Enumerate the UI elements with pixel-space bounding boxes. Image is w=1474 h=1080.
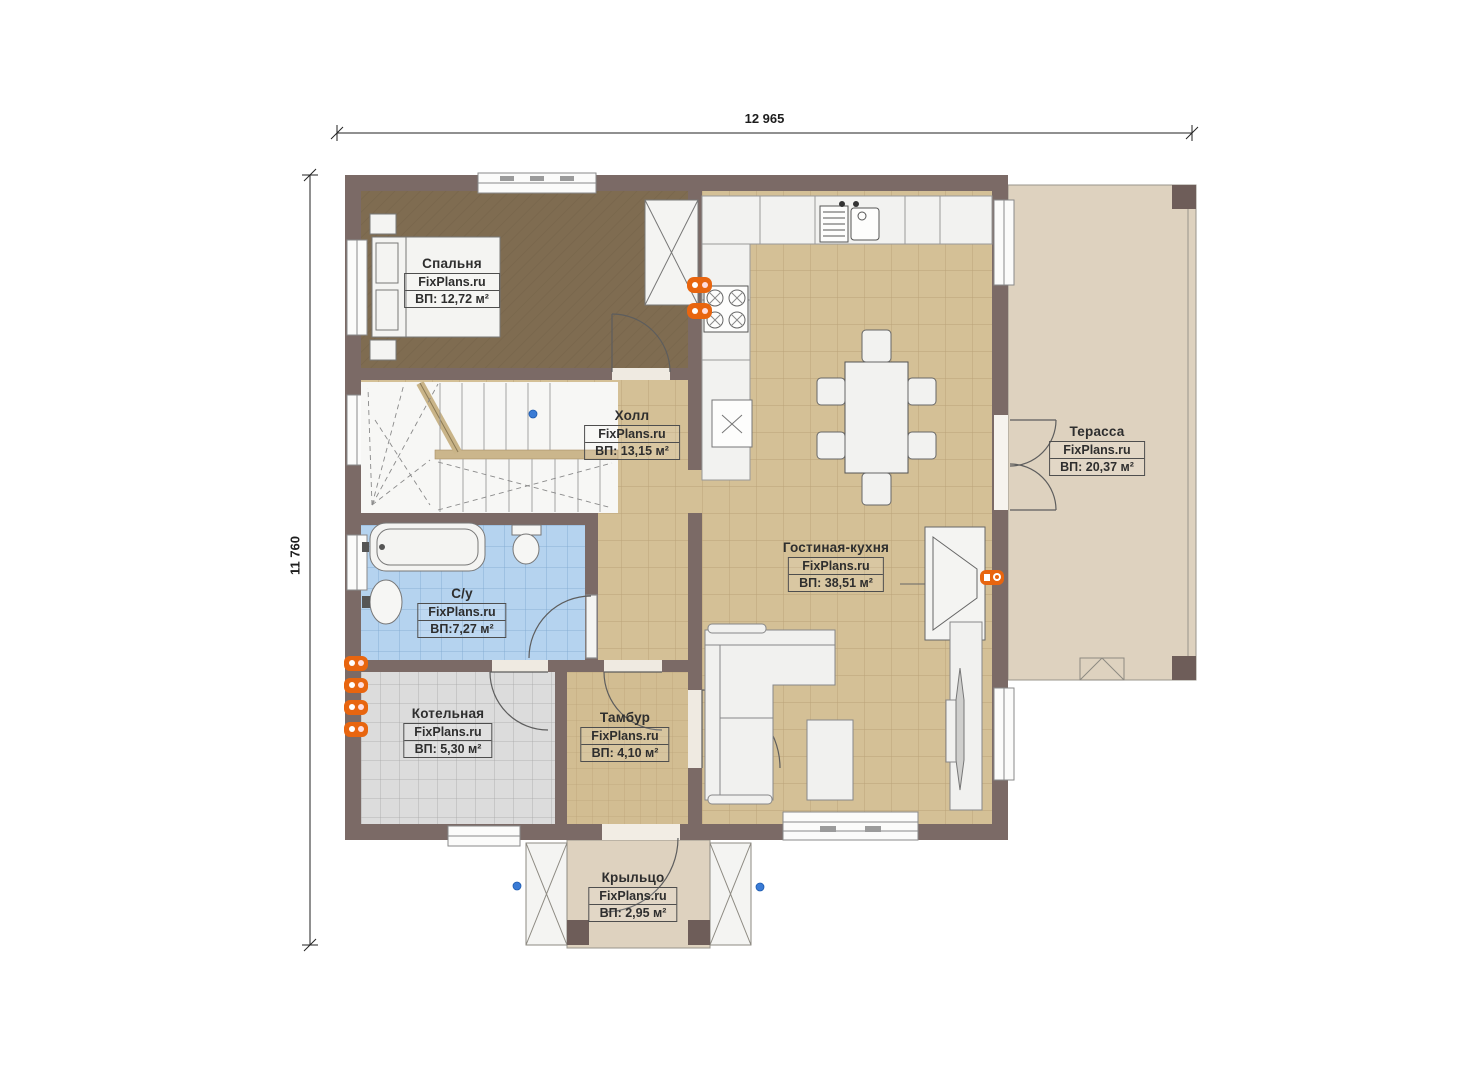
room-name: Гостиная-кухня bbox=[783, 540, 889, 555]
room-area-text: ВП: 2,95 м² bbox=[589, 905, 676, 921]
floor-plan-canvas: 12 965 11 760 Спальня FixPlans.ru ВП: 12… bbox=[0, 0, 1474, 1080]
power-socket-icon bbox=[344, 722, 368, 737]
room-info-box: FixPlans.ru ВП:7,27 м² bbox=[417, 603, 506, 638]
toilet bbox=[512, 525, 541, 564]
room-area-text: ВП: 38,51 м² bbox=[789, 575, 883, 591]
tv-stand bbox=[946, 622, 982, 810]
dimension-width-label: 12 965 bbox=[337, 111, 1192, 126]
room-info-box: FixPlans.ru ВП: 2,95 м² bbox=[588, 887, 677, 922]
brand-text: FixPlans.ru bbox=[404, 724, 491, 741]
selection-handle[interactable] bbox=[513, 882, 521, 890]
room-area-text: ВП: 4,10 м² bbox=[581, 745, 668, 761]
brand-text: FixPlans.ru bbox=[585, 426, 679, 443]
room-label-bedroom: Спальня FixPlans.ru ВП: 12,72 м² bbox=[404, 256, 500, 308]
room-name: Спальня bbox=[404, 256, 500, 271]
room-name: Терасса bbox=[1049, 424, 1145, 439]
room-area-text: ВП: 20,37 м² bbox=[1050, 459, 1144, 475]
room-info-box: FixPlans.ru ВП: 4,10 м² bbox=[580, 727, 669, 762]
staircase bbox=[361, 382, 618, 513]
plan-drawing bbox=[0, 0, 1474, 1080]
room-info-box: FixPlans.ru ВП: 20,37 м² bbox=[1049, 441, 1145, 476]
room-area-text: ВП: 12,72 м² bbox=[405, 291, 499, 307]
porch-column bbox=[688, 920, 710, 945]
room-name: Холл bbox=[584, 408, 680, 423]
room-label-hall: Холл FixPlans.ru ВП: 13,15 м² bbox=[584, 408, 680, 460]
room-info-box: FixPlans.ru ВП: 5,30 м² bbox=[403, 723, 492, 758]
brand-text: FixPlans.ru bbox=[589, 888, 676, 905]
bathtub bbox=[362, 523, 485, 571]
room-label-porch: Крыльцо FixPlans.ru ВП: 2,95 м² bbox=[588, 870, 677, 922]
window-bedroom-top bbox=[478, 173, 596, 193]
room-area-text: ВП:7,27 м² bbox=[418, 621, 505, 637]
porch-steps-left bbox=[526, 843, 567, 945]
terrace-post bbox=[1172, 185, 1196, 209]
room-area-text: ВП: 5,30 м² bbox=[404, 741, 491, 757]
porch-steps-right bbox=[710, 843, 751, 945]
window-right-kitchen bbox=[994, 200, 1014, 285]
hall-corridor-floor bbox=[598, 513, 688, 660]
room-info-box: FixPlans.ru ВП: 38,51 м² bbox=[788, 557, 884, 592]
room-label-vestibule: Тамбур FixPlans.ru ВП: 4,10 м² bbox=[580, 710, 669, 762]
power-socket-icon bbox=[344, 700, 368, 715]
selection-handle[interactable] bbox=[529, 410, 537, 418]
brand-text: FixPlans.ru bbox=[405, 274, 499, 291]
window-bottom-boiler bbox=[448, 826, 520, 846]
room-label-living-kitchen: Гостиная-кухня FixPlans.ru ВП: 38,51 м² bbox=[783, 540, 889, 592]
power-socket-icon bbox=[687, 277, 712, 293]
power-socket-icon bbox=[687, 303, 712, 319]
brand-text: FixPlans.ru bbox=[418, 604, 505, 621]
dining-table bbox=[845, 362, 908, 473]
room-label-boiler-room: Котельная FixPlans.ru ВП: 5,30 м² bbox=[403, 706, 492, 758]
room-name: Тамбур bbox=[580, 710, 669, 725]
dimension-height-line bbox=[302, 169, 318, 951]
dimension-height-label: 11 760 bbox=[288, 516, 303, 596]
coffee-table bbox=[807, 720, 853, 800]
terrace-post bbox=[1172, 656, 1196, 680]
room-info-box: FixPlans.ru ВП: 13,15 м² bbox=[584, 425, 680, 460]
room-info-box: FixPlans.ru ВП: 12,72 м² bbox=[404, 273, 500, 308]
power-socket-icon bbox=[344, 678, 368, 693]
room-label-bathroom: С/у FixPlans.ru ВП:7,27 м² bbox=[417, 586, 506, 638]
dimension-width-line bbox=[331, 125, 1198, 141]
window-left-bedroom bbox=[347, 240, 367, 335]
room-label-terrace: Терасса FixPlans.ru ВП: 20,37 м² bbox=[1049, 424, 1145, 476]
room-area-text: ВП: 13,15 м² bbox=[585, 443, 679, 459]
porch-column bbox=[567, 920, 589, 945]
brand-text: FixPlans.ru bbox=[1050, 442, 1144, 459]
room-name: Крыльцо bbox=[588, 870, 677, 885]
dishwasher bbox=[712, 400, 752, 447]
power-socket-icon bbox=[344, 656, 368, 671]
window-right-living bbox=[994, 688, 1014, 780]
room-name: С/у bbox=[417, 586, 506, 601]
brand-text: FixPlans.ru bbox=[789, 558, 883, 575]
room-name: Котельная bbox=[403, 706, 492, 721]
selection-handle[interactable] bbox=[756, 883, 764, 891]
window-bottom-living bbox=[783, 812, 918, 840]
power-socket-icon bbox=[980, 570, 1004, 585]
brand-text: FixPlans.ru bbox=[581, 728, 668, 745]
